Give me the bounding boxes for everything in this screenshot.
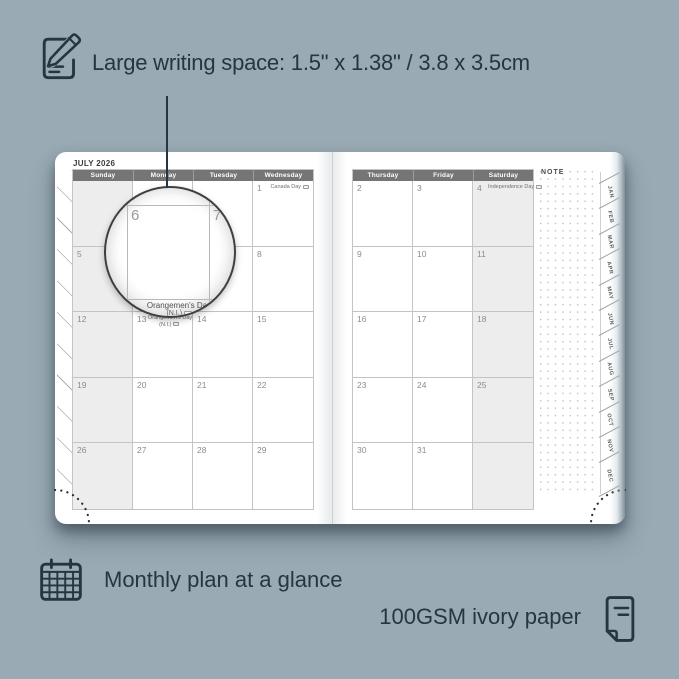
callout-line [166, 96, 168, 188]
day-cell: 27 [133, 443, 193, 509]
day-cell: 2 [353, 181, 413, 247]
magnified-grid-line [106, 205, 234, 206]
day-cell: 16 [353, 312, 413, 378]
weekday-header: Sunday [73, 170, 133, 181]
magnified-grid-line [209, 188, 210, 316]
day-cell: 31 [413, 443, 473, 509]
day-number: 9 [357, 249, 362, 259]
day-number: 12 [77, 314, 86, 324]
day-cell: 20 [133, 378, 193, 444]
weekday-header: Friday [413, 170, 473, 181]
holiday-flag-icon [303, 185, 309, 189]
magnified-day-7: 7 [213, 207, 221, 224]
day-number: 2 [357, 183, 362, 193]
day-cell: 3 [413, 181, 473, 247]
day-cell: 15 [253, 312, 313, 378]
magnified-day-6: 6 [131, 207, 139, 224]
holiday-text: Independence Day [488, 184, 531, 191]
note-column-label: NOTE [541, 169, 566, 176]
page-stack-edge [610, 152, 625, 524]
day-number: 10 [417, 249, 426, 259]
weekday-header: Thursday [353, 170, 413, 181]
day-number: 11 [477, 249, 486, 259]
day-number: 4 [477, 183, 482, 193]
day-number: 15 [257, 314, 266, 324]
day-cell: 18 [473, 312, 533, 378]
month-title: JULY 2026 [73, 159, 115, 168]
feature-caption-paper: 100GSM ivory paper [379, 604, 581, 630]
day-cell: 28 [193, 443, 253, 509]
day-cell: 11 [473, 247, 533, 313]
day-cell: 30 [353, 443, 413, 509]
day-cell: 8 [253, 247, 313, 313]
holiday-label: Independence Day [488, 184, 531, 191]
magnifier-circle: 6 7 13 Orangemen's Day (N.I.) [104, 186, 236, 318]
holiday-text: Canada Day [268, 184, 311, 191]
note-dot-grid [537, 168, 599, 492]
paper-sheet-icon [599, 594, 641, 644]
day-number: 21 [197, 380, 206, 390]
day-number: 17 [417, 314, 426, 324]
day-number: 25 [477, 380, 486, 390]
day-cell: 4Independence Day [473, 181, 533, 247]
day-number: 3 [417, 183, 422, 193]
day-number: 24 [417, 380, 426, 390]
weekday-header: Tuesday [193, 170, 253, 181]
feature-caption-monthly: Monthly plan at a glance [104, 567, 343, 593]
corner-perforation-left [49, 482, 99, 528]
weekday-header: Saturday [473, 170, 533, 181]
day-cell [473, 443, 533, 509]
day-cell: 19 [73, 378, 133, 444]
calendar-grid-icon [38, 557, 84, 603]
day-cell: 23 [353, 378, 413, 444]
day-number: 23 [357, 380, 366, 390]
book-spine [317, 152, 347, 524]
day-number: 29 [257, 445, 266, 455]
day-cell: 29 [253, 443, 313, 509]
day-cell: 10 [413, 247, 473, 313]
day-cell: 12 [73, 312, 133, 378]
day-number: 19 [77, 380, 86, 390]
day-number: 18 [477, 314, 486, 324]
magnified-day-13: 13 [113, 300, 129, 316]
day-number: 26 [77, 445, 86, 455]
feature-headline: Large writing space: 1.5" x 1.38" / 3.8 … [92, 50, 530, 76]
day-cell: 9 [353, 247, 413, 313]
day-cell: 17 [413, 312, 473, 378]
calendar-right-page: ThursdayFridaySaturday234Independence Da… [352, 169, 534, 510]
day-number: 28 [197, 445, 206, 455]
holiday-flag-icon [173, 322, 179, 326]
day-number: 8 [257, 249, 262, 259]
day-number: 5 [77, 249, 82, 259]
day-cell: 24 [413, 378, 473, 444]
day-number: 31 [417, 445, 426, 455]
magnified-holiday-label: Orangemen's Day (N.I.) [130, 301, 228, 318]
day-number: 20 [137, 380, 146, 390]
day-cell: 22 [253, 378, 313, 444]
weekday-header: Monday [133, 170, 193, 181]
day-number: 16 [357, 314, 366, 324]
day-cell: 13Orangemen's Day(N.I.) [133, 312, 193, 378]
day-cell: 25 [473, 378, 533, 444]
day-cell: 1Canada Day [253, 181, 313, 247]
weekday-header: Wednesday [253, 170, 313, 181]
day-cell: 14 [193, 312, 253, 378]
magnified-grid-line [127, 188, 128, 316]
holiday-label: Canada Day [268, 184, 311, 191]
day-number: 22 [257, 380, 266, 390]
day-cell: 21 [193, 378, 253, 444]
holiday-flag-icon [184, 311, 192, 316]
day-number: 30 [357, 445, 366, 455]
day-number: 27 [137, 445, 146, 455]
product-image: Large writing space: 1.5" x 1.38" / 3.8 … [0, 0, 679, 679]
day-number: 1 [257, 183, 262, 193]
pencil-note-icon [37, 30, 87, 84]
holiday-text: (N.I.) [148, 322, 190, 329]
